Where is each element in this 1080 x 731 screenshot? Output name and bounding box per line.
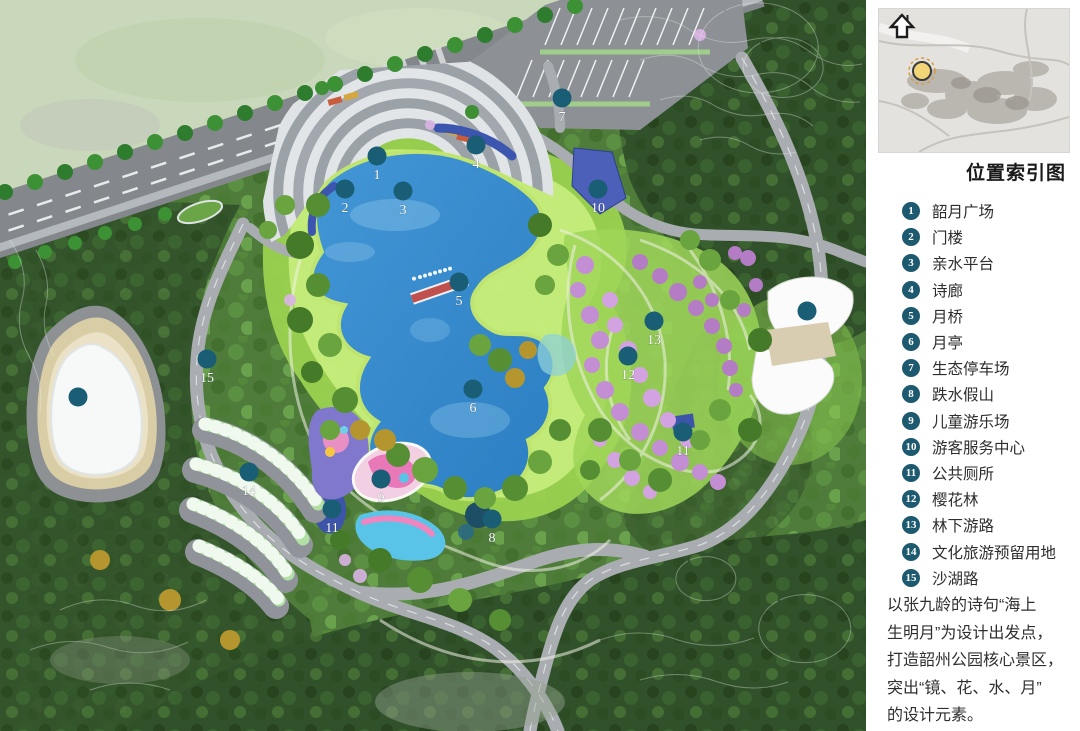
legend-panel: N 位置索引图 1 韶月广场 2 门楼 3 亲水平台 4 — [866, 0, 1080, 731]
marker-number: 2 — [342, 201, 349, 216]
site-location-marker — [913, 62, 931, 80]
legend-item-label: 公共厕所 — [932, 462, 994, 484]
map-marker-12: 12 — [619, 347, 638, 384]
legend-item: 15 沙湖路 — [902, 565, 1078, 591]
legend-number-badge: 9 — [902, 412, 920, 430]
legend-number-badge: 7 — [902, 359, 920, 377]
marker-dot — [372, 470, 391, 489]
marker-dot — [674, 423, 693, 442]
legend-item: 2 门楼 — [902, 224, 1078, 250]
marker-number: 10 — [591, 201, 605, 216]
marker-dot — [645, 312, 664, 331]
legend-item: 10 游客服务中心 — [902, 434, 1078, 460]
park-master-plan: 12345678910111112131415 — [0, 0, 866, 731]
page: 12345678910111112131415 — [0, 0, 1080, 731]
map-marker-4: 4 — [467, 136, 486, 173]
legend-number-badge: 15 — [902, 569, 920, 587]
marker-overlay: 12345678910111112131415 — [0, 0, 866, 731]
marker-number: 5 — [456, 294, 463, 309]
marker-dot — [483, 510, 502, 529]
description-line: 以张九龄的诗句“海上 — [887, 592, 1069, 620]
marker-dot — [798, 302, 817, 321]
legend-item-label: 跌水假山 — [932, 383, 994, 405]
marker-number: 9 — [378, 491, 385, 506]
marker-dot — [394, 182, 413, 201]
legend-number-badge: 3 — [902, 254, 920, 272]
legend-list: 1 韶月广场 2 门楼 3 亲水平台 4 诗廊 5 月桥 — [902, 198, 1078, 591]
map-marker-5: 5 — [450, 273, 469, 310]
legend-item-label: 沙湖路 — [932, 567, 979, 589]
map-marker-1: 1 — [368, 147, 387, 184]
legend-item-label: 樱花林 — [932, 488, 979, 510]
legend-item: 11 公共厕所 — [902, 460, 1078, 486]
description-line: 的设计元素。 — [887, 702, 1069, 730]
marker-number: 3 — [400, 203, 407, 218]
legend-item: 6 月亭 — [902, 329, 1078, 355]
marker-dot — [464, 380, 483, 399]
marker-number: 11 — [676, 444, 689, 459]
legend-item-label: 韶月广场 — [932, 200, 994, 222]
legend-number-badge: 1 — [902, 202, 920, 220]
legend-item-label: 林下游路 — [932, 514, 994, 536]
legend-number-badge: 2 — [902, 228, 920, 246]
legend-item-label: 月桥 — [932, 305, 963, 327]
legend-item: 13 林下游路 — [902, 512, 1078, 538]
marker-dot — [450, 273, 469, 292]
marker-number: 4 — [473, 157, 480, 172]
map-marker-2: 2 — [336, 180, 355, 217]
map-marker-9: 9 — [372, 470, 391, 507]
legend-number-badge: 11 — [902, 464, 920, 482]
marker-dot — [589, 180, 608, 199]
legend-item-label: 游客服务中心 — [932, 436, 1025, 458]
marker-number: 15 — [200, 371, 214, 386]
map-marker-dot — [798, 302, 817, 321]
marker-dot — [198, 350, 217, 369]
legend-number-badge: 13 — [902, 516, 920, 534]
map-marker-dot — [69, 388, 88, 407]
design-description: 以张九龄的诗句“海上生明月”为设计出发点，打造韶州公园核心景区，突出“镜、花、水… — [887, 592, 1069, 730]
legend-item: 3 亲水平台 — [902, 250, 1078, 276]
marker-number: 6 — [470, 401, 477, 416]
map-marker-11: 11 — [674, 423, 693, 460]
map-marker-7: 7 — [553, 89, 572, 126]
map-marker-10: 10 — [589, 180, 608, 217]
marker-dot — [467, 136, 486, 155]
legend-item-label: 门楼 — [932, 226, 963, 248]
marker-dot — [368, 147, 387, 166]
location-inset-map: N — [878, 8, 1070, 153]
legend-item: 12 樱花林 — [902, 486, 1078, 512]
legend-number-badge: 5 — [902, 307, 920, 325]
legend-item-label: 文化旅游预留用地 — [932, 541, 1056, 563]
marker-number: 14 — [242, 484, 256, 499]
north-arrow-icon: N — [887, 13, 921, 28]
marker-dot — [553, 89, 572, 108]
legend-item: 5 月桥 — [902, 303, 1078, 329]
map-marker-8: 8 — [483, 510, 502, 547]
legend-item-label: 月亭 — [932, 331, 963, 353]
legend-number-badge: 8 — [902, 385, 920, 403]
marker-number: 7 — [559, 110, 566, 125]
marker-dot — [619, 347, 638, 366]
marker-dot — [336, 180, 355, 199]
legend-number-badge: 14 — [902, 543, 920, 561]
marker-dot — [240, 463, 259, 482]
legend-item: 7 生态停车场 — [902, 355, 1078, 381]
description-line: 突出“镜、花、水、月” — [887, 675, 1069, 703]
map-marker-14: 14 — [240, 463, 259, 500]
legend-number-badge: 10 — [902, 438, 920, 456]
marker-dot — [69, 388, 88, 407]
legend-item-label: 诗廊 — [932, 279, 963, 301]
legend-item-label: 生态停车场 — [932, 357, 1010, 379]
marker-number: 1 — [374, 168, 381, 183]
map-marker-3: 3 — [394, 182, 413, 219]
marker-number: 11 — [325, 521, 338, 536]
map-marker-11: 11 — [323, 500, 342, 537]
marker-dot — [323, 500, 342, 519]
panel-title: 位置索引图 — [966, 158, 1066, 185]
map-marker-13: 13 — [645, 312, 664, 349]
description-line: 打造韶州公园核心景区， — [887, 647, 1069, 675]
marker-number: 8 — [489, 531, 496, 546]
legend-item: 14 文化旅游预留用地 — [902, 538, 1078, 564]
legend-item: 9 儿童游乐场 — [902, 408, 1078, 434]
legend-number-badge: 4 — [902, 281, 920, 299]
legend-item: 8 跌水假山 — [902, 381, 1078, 407]
legend-item-label: 亲水平台 — [932, 252, 994, 274]
map-marker-6: 6 — [464, 380, 483, 417]
description-line: 生明月”为设计出发点， — [887, 620, 1069, 648]
legend-item-label: 儿童游乐场 — [932, 410, 1010, 432]
marker-number: 12 — [621, 368, 635, 383]
legend-item: 1 韶月广场 — [902, 198, 1078, 224]
marker-number: 13 — [647, 333, 661, 348]
legend-number-badge: 12 — [902, 490, 920, 508]
legend-number-badge: 6 — [902, 333, 920, 351]
legend-item: 4 诗廊 — [902, 277, 1078, 303]
map-marker-15: 15 — [198, 350, 217, 387]
